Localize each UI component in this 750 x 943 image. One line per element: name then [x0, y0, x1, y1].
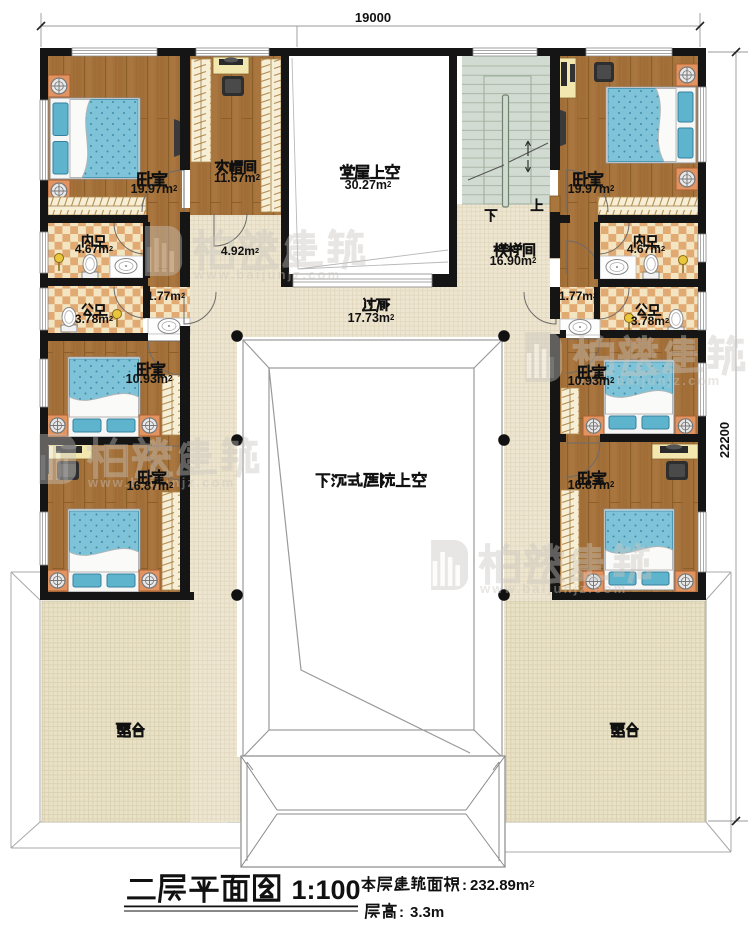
- svg-text:www.baijunjz.com: www.baijunjz.com: [479, 581, 627, 596]
- svg-text::: :: [399, 904, 404, 921]
- svg-text:10.93m2: 10.93m2: [126, 372, 173, 386]
- svg-text:17.73m2: 17.73m2: [348, 311, 395, 325]
- svg-text:19000: 19000: [355, 10, 391, 25]
- svg-text:16.90m2: 16.90m2: [490, 254, 537, 268]
- svg-text:www.baijunjz.com: www.baijunjz.com: [193, 267, 341, 282]
- svg-text:1:100: 1:100: [291, 875, 360, 905]
- svg-text:16.87m2: 16.87m2: [127, 479, 174, 493]
- svg-text:1.77m2: 1.77m2: [147, 289, 185, 303]
- svg-text:22200: 22200: [717, 422, 732, 458]
- svg-text:3.78m2: 3.78m2: [75, 312, 113, 326]
- svg-text:4.67m2: 4.67m2: [627, 242, 665, 256]
- svg-text:232.89m2: 232.89m2: [470, 877, 535, 894]
- svg-text:3.3m: 3.3m: [410, 904, 444, 921]
- svg-text:3.78m2: 3.78m2: [631, 314, 669, 328]
- svg-text:19.97m2: 19.97m2: [131, 182, 178, 196]
- svg-text:10.93m2: 10.93m2: [568, 374, 615, 388]
- svg-text::: :: [462, 877, 467, 894]
- svg-text:1.77m2: 1.77m2: [559, 289, 597, 303]
- svg-text:16.87m2: 16.87m2: [568, 478, 615, 492]
- svg-text:19.97m2: 19.97m2: [568, 182, 615, 196]
- svg-text:4.67m2: 4.67m2: [75, 242, 113, 256]
- svg-text:4.92m2: 4.92m2: [221, 244, 259, 258]
- svg-text:30.27m2: 30.27m2: [345, 178, 392, 192]
- svg-text:11.67m2: 11.67m2: [214, 171, 261, 185]
